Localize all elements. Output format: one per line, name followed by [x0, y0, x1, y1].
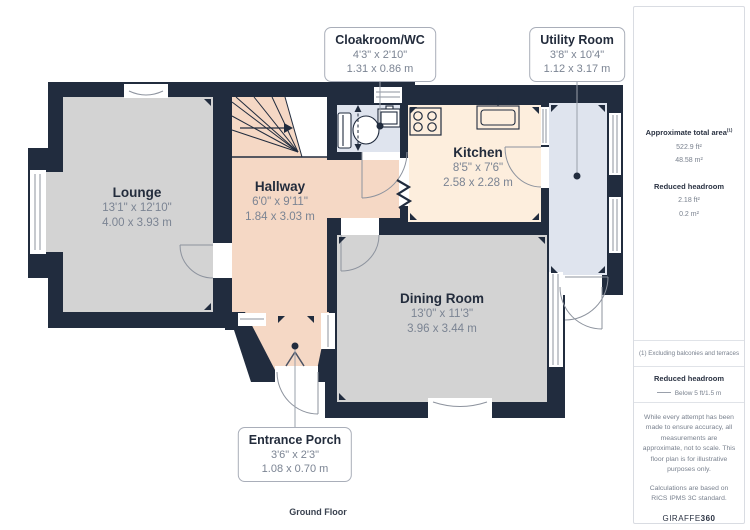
callout-dims-metric: 1.12 x 3.17 m: [540, 62, 614, 76]
callout-title: Cloakroom/WC: [335, 32, 425, 48]
brand-bold: 360: [701, 514, 716, 523]
legend-item-text: Below 5 ft/1.5 m: [675, 390, 722, 397]
total-area-superscript: (1): [727, 128, 733, 133]
bay-recess: [46, 172, 63, 252]
total-area-m: 48.58 m²: [634, 154, 744, 167]
callout-dims-imperial: 4'3" x 2'10": [335, 48, 425, 62]
callout-title: Utility Room: [540, 32, 614, 48]
disclaimer-section: While every attempt has been made to ens…: [634, 402, 744, 523]
callout-dims-imperial: 3'8" x 10'4": [540, 48, 614, 62]
floorplan-page: Lounge 13'1" x 12'10" 4.00 x 3.93 m Hall…: [0, 0, 750, 530]
legend-row: Below 5 ft/1.5 m: [634, 390, 744, 397]
legend-line-swatch: [657, 392, 671, 393]
total-area-label: Approximate total area(1): [634, 126, 744, 140]
disclaimer-text: While every attempt has been made to ens…: [642, 413, 736, 476]
total-area-ft: 522.9 ft²: [634, 141, 744, 154]
standard-text: Calculations are based on RICS IPMS 3C s…: [642, 484, 736, 505]
callout-entrance-porch: Entrance Porch 3'6" x 2'3" 1.08 x 0.70 m: [238, 427, 352, 482]
callout-dims-imperial: 3'6" x 2'3": [249, 448, 341, 462]
area-summary-section: Approximate total area(1) 522.9 ft² 48.5…: [634, 7, 744, 340]
callout-cloakroom-wc: Cloakroom/WC 4'3" x 2'10" 1.31 x 0.86 m: [324, 27, 436, 82]
footnote-text: (1) Excluding balconies and terraces: [639, 350, 739, 357]
utility-floor: [549, 103, 607, 275]
footnote-section: (1) Excluding balconies and terraces: [634, 340, 744, 366]
reduced-headroom-label: Reduced headroom: [634, 180, 744, 194]
reduced-headroom-m: 0.2 m²: [634, 208, 744, 221]
kitchen-floor: [408, 105, 541, 222]
callout-dims-metric: 1.08 x 0.70 m: [249, 462, 341, 476]
legend-title: Reduced headroom: [634, 372, 744, 386]
lounge-floor: [63, 97, 213, 312]
callout-utility-room: Utility Room 3'8" x 10'4" 1.12 x 3.17 m: [529, 27, 625, 82]
reduced-headroom-ft: 2.18 ft²: [634, 194, 744, 207]
info-panel: Approximate total area(1) 522.9 ft² 48.5…: [633, 6, 745, 524]
total-area-text: Approximate total area: [646, 128, 727, 137]
floor-name-label: Ground Floor: [0, 507, 636, 517]
brand-regular: GIRAFFE: [662, 514, 700, 523]
legend-section: Reduced headroom Below 5 ft/1.5 m: [634, 366, 744, 401]
giraffe360-logo: GIRAFFE360: [642, 514, 736, 523]
callout-dims-metric: 1.31 x 0.86 m: [335, 62, 425, 76]
callout-title: Entrance Porch: [249, 432, 341, 448]
